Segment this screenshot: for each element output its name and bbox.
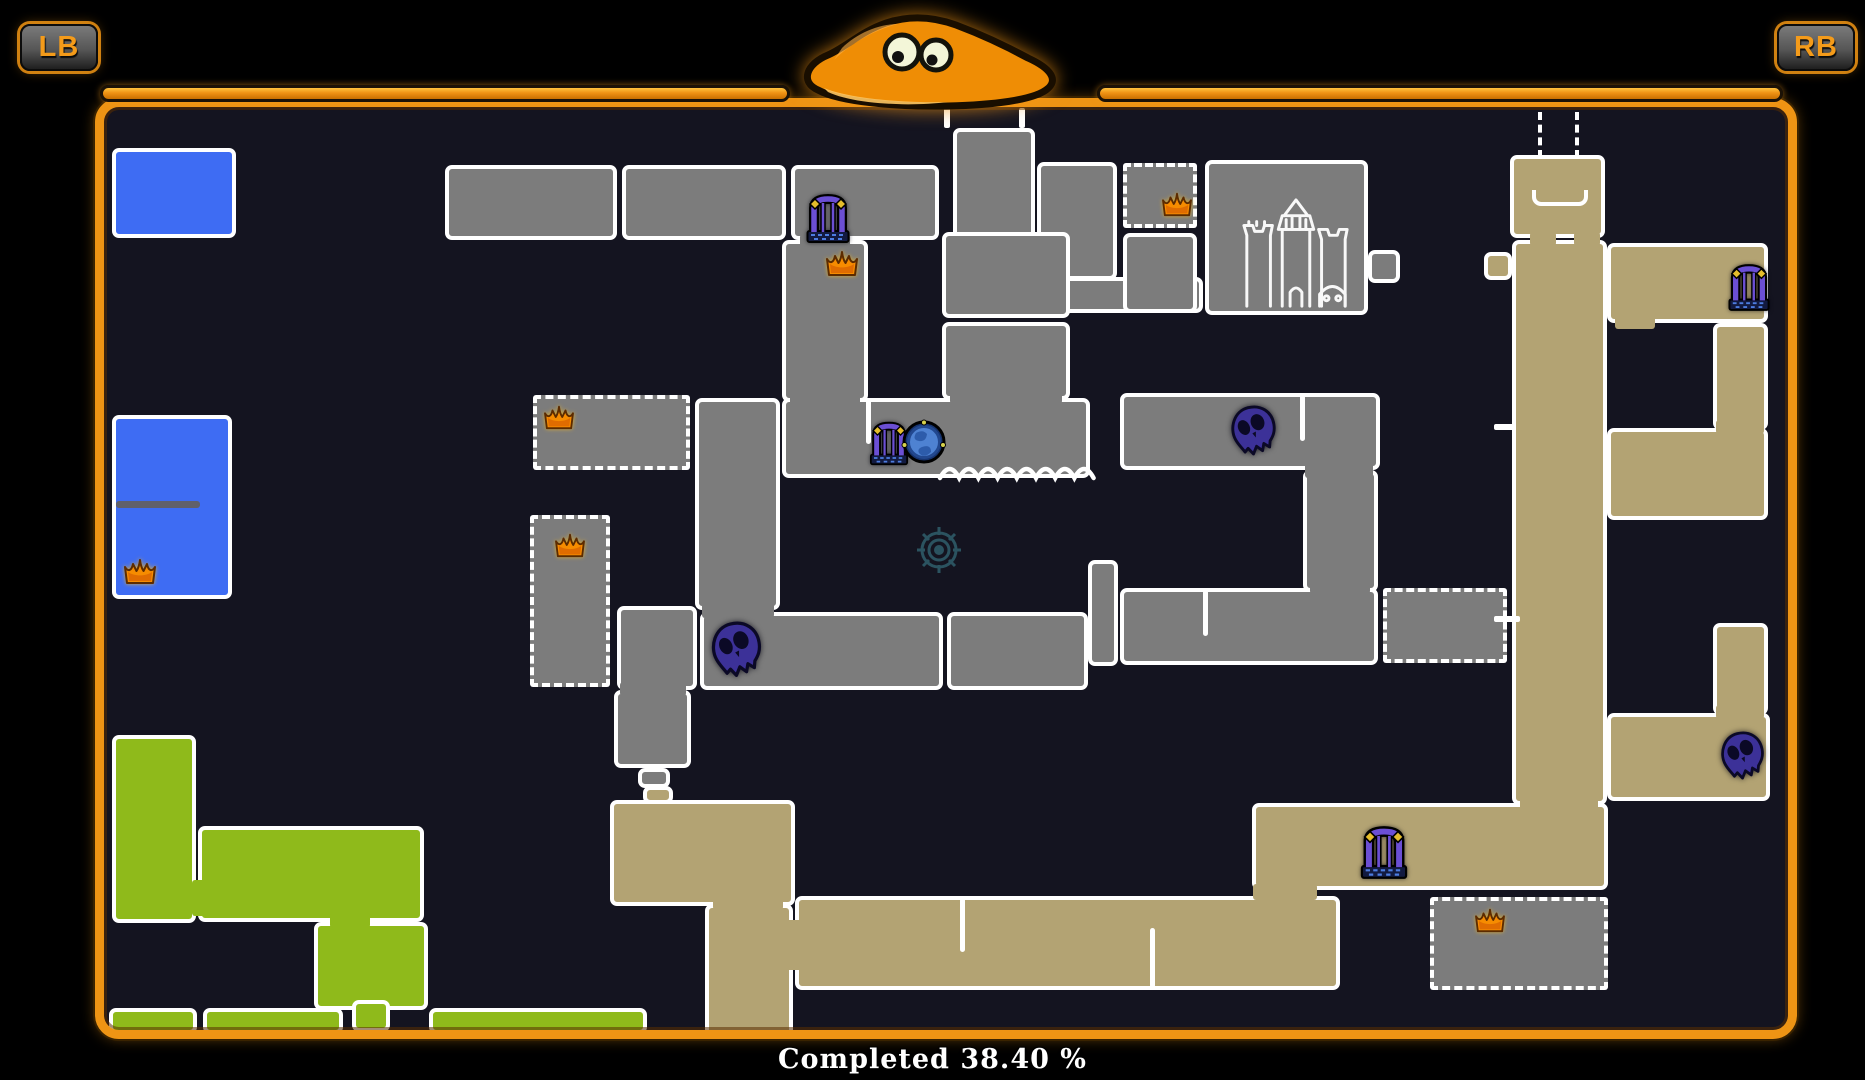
skull-icon (708, 620, 766, 682)
map-passage-tan (1615, 315, 1655, 329)
map-room-gray (942, 232, 1070, 318)
orb-icon (901, 418, 947, 466)
map-passage-gray (790, 392, 860, 406)
map-room-gray (947, 612, 1088, 690)
map-room-tan (1607, 428, 1768, 520)
completion-text: Completed 38.40 % (0, 1044, 1865, 1075)
map-room-gray-secret (1383, 588, 1507, 663)
crown-icon (541, 403, 577, 431)
map-room-gray (1088, 560, 1118, 666)
wall-slit-icon (960, 898, 965, 952)
rb-button[interactable]: RB (1777, 24, 1855, 71)
map-passage-tan (780, 920, 804, 970)
map-room-green (429, 1008, 647, 1034)
map-room-green (352, 1000, 390, 1032)
wall-slit-icon (1300, 395, 1305, 441)
crown-icon (553, 531, 587, 559)
map-room-gray (1123, 233, 1197, 313)
map-passage-tan (1530, 232, 1556, 246)
dash-line-icon (1538, 112, 1546, 158)
wall-tick-icon (1494, 616, 1520, 622)
map-room-gray (695, 398, 780, 610)
wall-slit-icon (866, 398, 871, 444)
crown-icon (122, 556, 158, 586)
skull-icon (1228, 404, 1280, 460)
top-bar-right (1097, 85, 1783, 102)
gate-icon (1728, 261, 1770, 313)
map-room-gray (622, 165, 786, 240)
map-room-tan (1512, 240, 1607, 805)
wall-tick-icon (1494, 424, 1516, 430)
map-passage-tan (1520, 798, 1598, 810)
target-icon (914, 524, 964, 576)
map-room-tan (795, 896, 1340, 990)
map-room-gray (614, 690, 691, 768)
map-room-gray (1120, 588, 1378, 665)
map-passage-gray (950, 390, 1062, 404)
map-room-tan (1252, 803, 1608, 890)
map-passage-tan (1253, 884, 1317, 900)
map-room-gray (1303, 470, 1378, 592)
map-area (0, 0, 1865, 1080)
top-bar-left (100, 85, 790, 102)
map-passage-green (192, 880, 208, 916)
bracket-icon (1532, 190, 1588, 206)
map-room-gray (445, 165, 617, 240)
skull-icon (1718, 730, 1768, 784)
map-room-gray (1368, 250, 1400, 283)
castle-icon (1236, 196, 1356, 314)
map-room-gray (617, 606, 697, 690)
map-room-gray (953, 128, 1035, 240)
map-room-green (112, 735, 196, 923)
map-room-tan (610, 800, 795, 906)
map-passage-gray (1310, 580, 1370, 594)
map-passage-gray (1305, 462, 1373, 478)
map-passage-divider (116, 501, 200, 508)
map-room-green (203, 1008, 343, 1034)
map-passage-gray (620, 682, 686, 696)
gate-icon (806, 192, 850, 244)
map-room-tan (1713, 323, 1768, 430)
lb-button[interactable]: LB (20, 24, 98, 71)
map-passage-tan (1716, 705, 1764, 719)
blob-character-icon (798, 8, 1082, 116)
map-room-tan (1484, 252, 1512, 280)
map-room-green (314, 922, 428, 1010)
map-passage-tan (1716, 420, 1764, 434)
map-room-green (198, 826, 424, 922)
map-room-tan (1713, 623, 1768, 715)
dash-line-icon (1575, 112, 1583, 158)
map-passage-green (330, 912, 370, 928)
wall-slit-icon (1150, 928, 1155, 988)
map-room-gray (638, 768, 670, 788)
gate-icon (1360, 824, 1408, 880)
map-screen: LB RB Completed 38.40 % (0, 0, 1865, 1080)
scallop-icon (938, 464, 1094, 488)
map-room-green (109, 1008, 197, 1034)
map-passage-gray (702, 602, 774, 618)
map-room-gray (942, 322, 1070, 400)
wall-slit-icon (1203, 590, 1208, 636)
crown-icon (1473, 906, 1507, 934)
map-passage-tan (713, 898, 783, 910)
map-room-blue (112, 148, 236, 238)
crown-icon (824, 248, 860, 278)
map-room-gray-secret (1430, 897, 1608, 990)
map-passage-tan (1574, 232, 1600, 246)
crown-icon (1160, 190, 1194, 218)
